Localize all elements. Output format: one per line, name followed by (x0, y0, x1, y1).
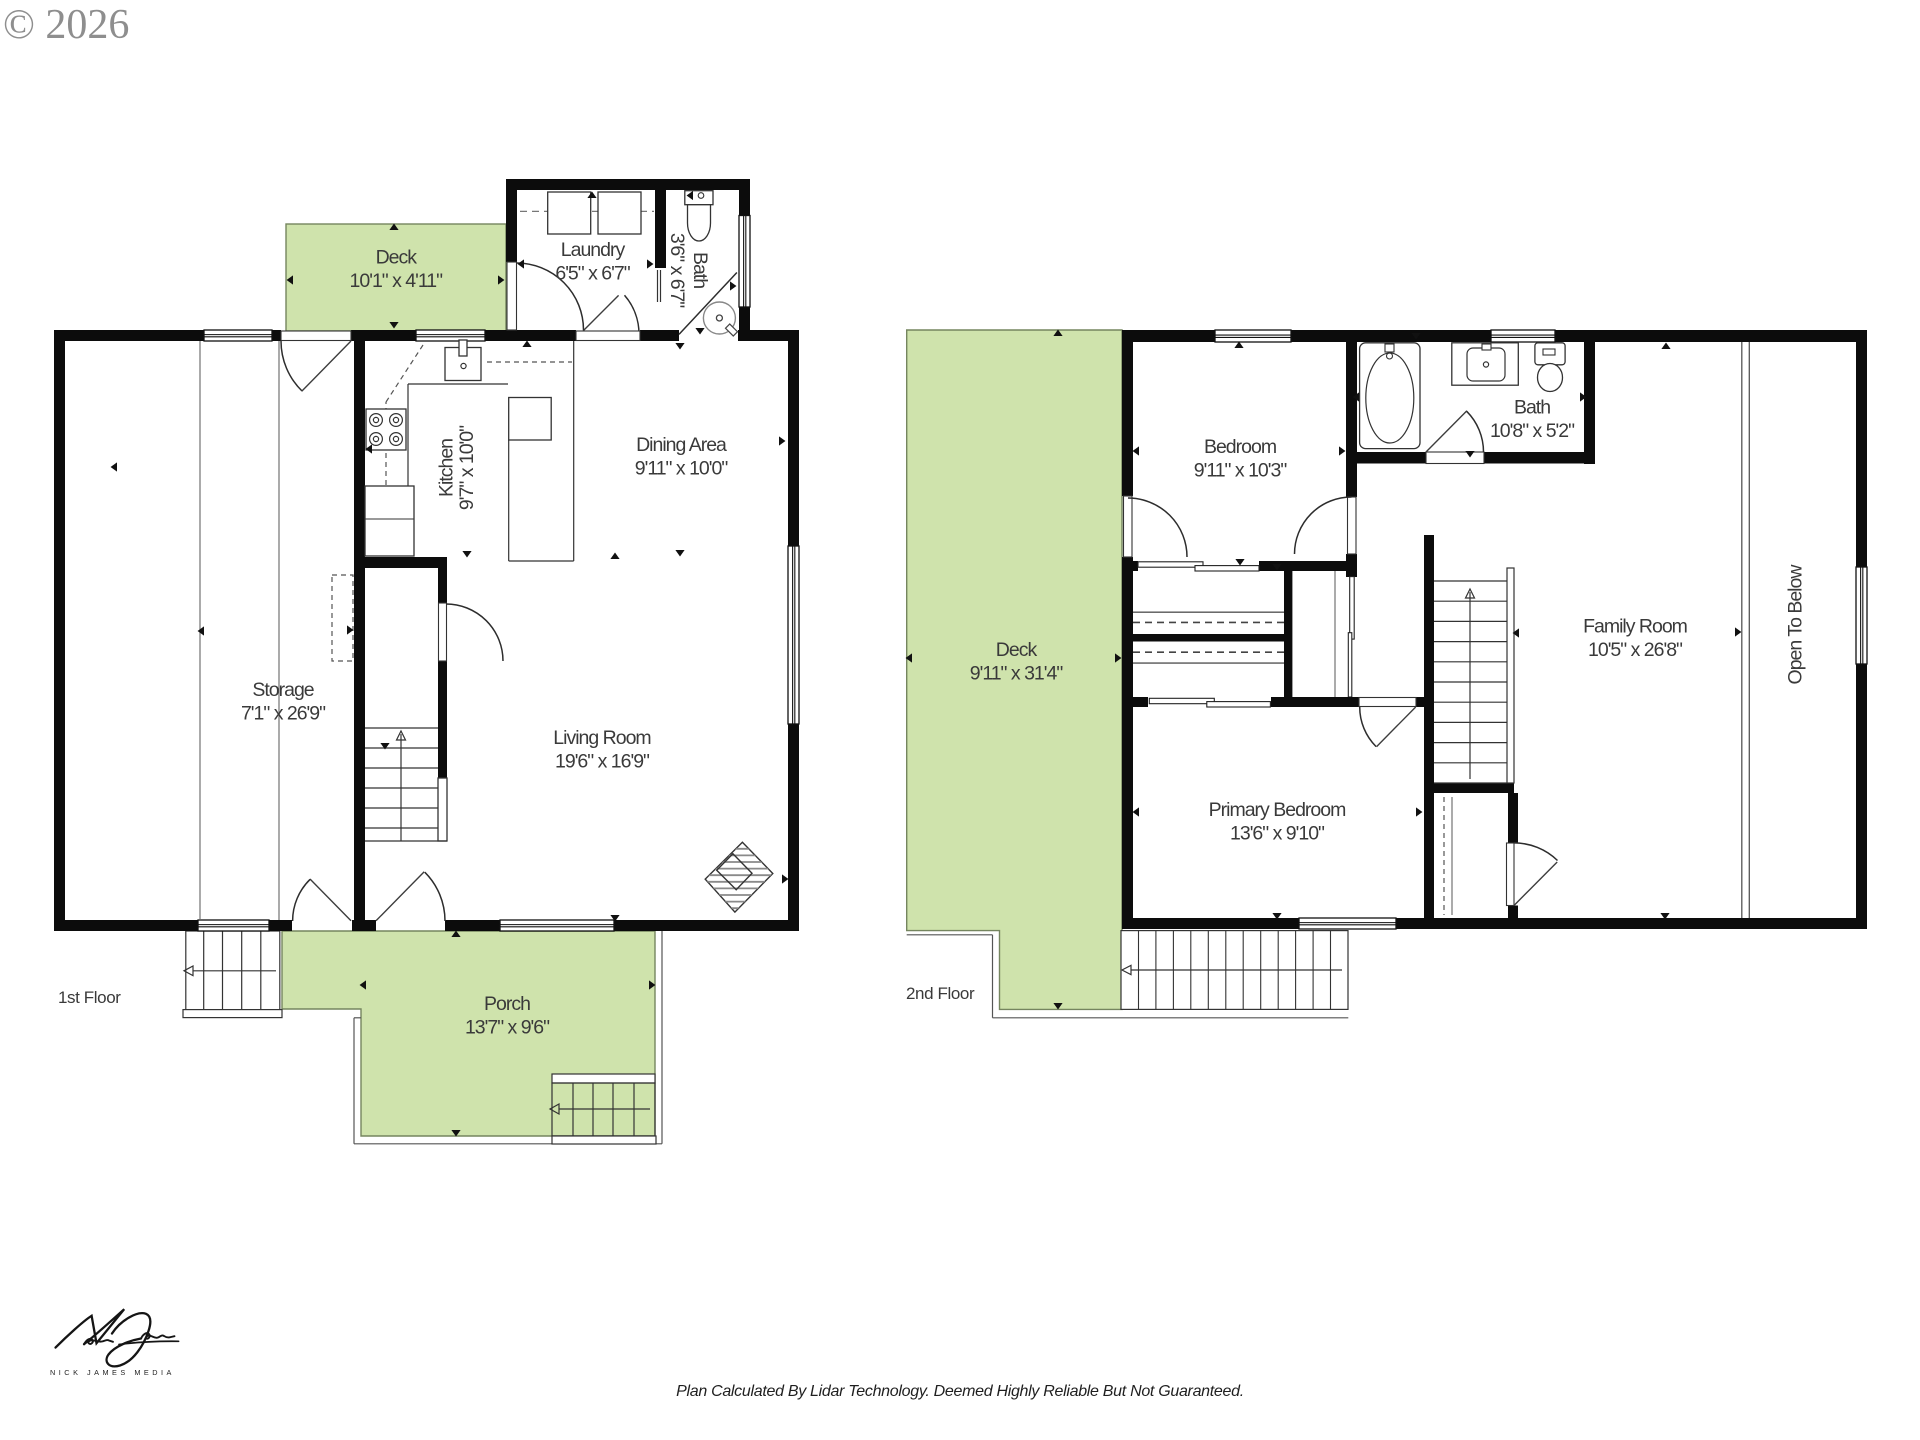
svg-text:Bedroom9'11" x 10'3": Bedroom9'11" x 10'3" (1194, 436, 1288, 482)
svg-text:Dining Area9'11" x 10'0": Dining Area9'11" x 10'0" (635, 434, 729, 480)
svg-text:1st Floor: 1st Floor (58, 988, 121, 1007)
svg-text:Kitchen: Kitchen (436, 439, 458, 497)
svg-text:2nd Floor: 2nd Floor (906, 984, 975, 1003)
svg-text:Family Room10'5" x 26'8": Family Room10'5" x 26'8" (1583, 616, 1687, 662)
svg-text:Open To Below: Open To Below (1785, 564, 1807, 685)
svg-text:NICK JAMES MEDIA: NICK JAMES MEDIA (50, 1368, 175, 1377)
svg-text:Plan Calculated By Lidar Techn: Plan Calculated By Lidar Technology. Dee… (676, 1383, 1244, 1400)
svg-text:3'6" x 6'7": 3'6" x 6'7" (666, 233, 688, 308)
svg-text:Living Room19'6" x 16'9": Living Room19'6" x 16'9" (553, 727, 650, 773)
svg-text:Storage7'1" x 26'9": Storage7'1" x 26'9" (241, 679, 326, 725)
svg-text:© 2026: © 2026 (3, 2, 129, 48)
svg-text:Bath: Bath (689, 252, 711, 288)
svg-text:Laundry6'5" x 6'7": Laundry6'5" x 6'7" (555, 239, 630, 285)
svg-text:9'7" x 10'0": 9'7" x 10'0" (456, 425, 478, 510)
svg-text:Bath10'8" x 5'2": Bath10'8" x 5'2" (1490, 397, 1575, 443)
svg-text:Primary Bedroom13'6" x 9'10": Primary Bedroom13'6" x 9'10" (1209, 799, 1346, 845)
